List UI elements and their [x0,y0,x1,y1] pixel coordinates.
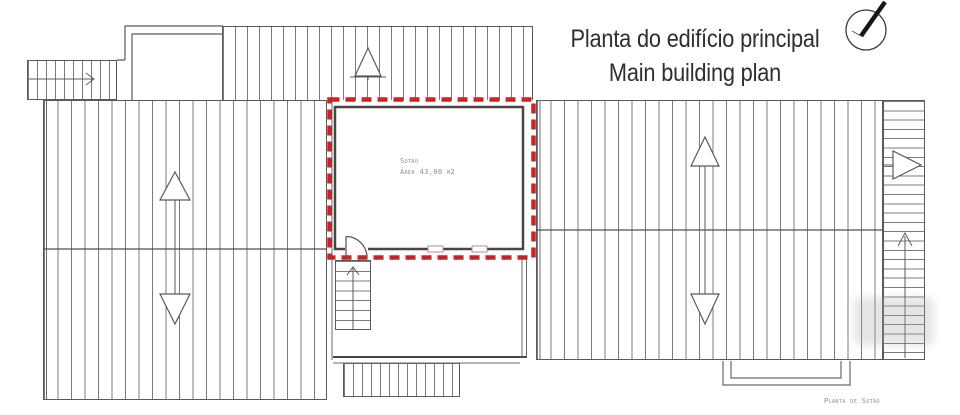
roof-slope-arrow-right-down [691,230,719,324]
watermark [854,297,934,345]
wall-opening-tab-2 [472,246,487,252]
middle-room-side-walls [333,258,527,363]
balcony-outline [723,361,850,385]
plan-title-en: Main building plan [556,56,834,90]
upper-left-room-outline [117,26,223,100]
roof-slope-arrow-left-up [160,172,190,249]
wall-opening-tab-1 [428,246,443,252]
compass-needle-icon [846,2,886,50]
attic-room-label: Sotão Área 43,00 m2 [400,156,455,178]
attic-room-walls [335,107,523,249]
stair-middle-arrow-icon [347,267,359,330]
attic-room-area: Área 43,00 m2 [400,167,455,178]
roof-slope-arrow-left-down [160,249,190,324]
plan-title-pt: Planta do edifício principal [556,22,834,56]
roof-slope-arrow-top [350,48,386,80]
attic-room-name: Sotão [400,156,455,167]
floor-plan: Planta do edifício principal Main buildi… [0,0,960,415]
roof-slope-arrow-right-up [691,137,719,230]
plan-title: Planta do edifício principal Main buildi… [556,22,834,90]
stair-top-left-arrow-icon [29,73,94,85]
plan-caption: Planta de Sotão [824,396,880,407]
